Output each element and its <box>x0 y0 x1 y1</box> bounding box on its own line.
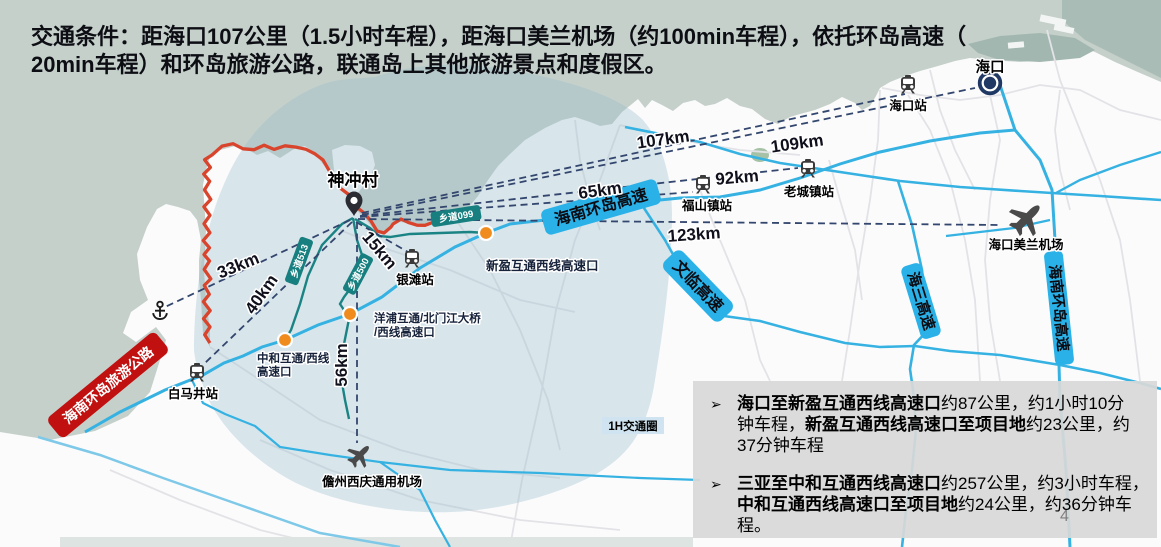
svg-text:白马井站: 白马井站 <box>168 386 219 401</box>
svg-text:中和互通/西线: 中和互通/西线 <box>257 351 330 365</box>
svg-text:银滩站: 银滩站 <box>396 272 434 287</box>
svg-text:福山镇站: 福山镇站 <box>681 198 733 213</box>
svg-text:海口美兰机场: 海口美兰机场 <box>988 237 1063 252</box>
svg-text:老城镇站: 老城镇站 <box>783 184 835 199</box>
svg-text:92km: 92km <box>715 166 760 189</box>
svg-text:新盈互通西线高速口: 新盈互通西线高速口 <box>486 258 599 273</box>
svg-text:56km: 56km <box>332 343 351 386</box>
svg-text:123km: 123km <box>667 223 721 246</box>
svg-text:1H交通圈: 1H交通圈 <box>608 419 657 433</box>
svg-text:高速口: 高速口 <box>257 365 292 379</box>
svg-text:洋浦互通/北门江大桥: 洋浦互通/北门江大桥 <box>374 311 481 325</box>
svg-text:神冲村: 神冲村 <box>328 170 379 190</box>
svg-text:/西线高速口: /西线高速口 <box>374 325 435 339</box>
svg-text:海口站: 海口站 <box>889 98 927 113</box>
svg-text:儋州西庆通用机场: 儋州西庆通用机场 <box>322 474 422 489</box>
